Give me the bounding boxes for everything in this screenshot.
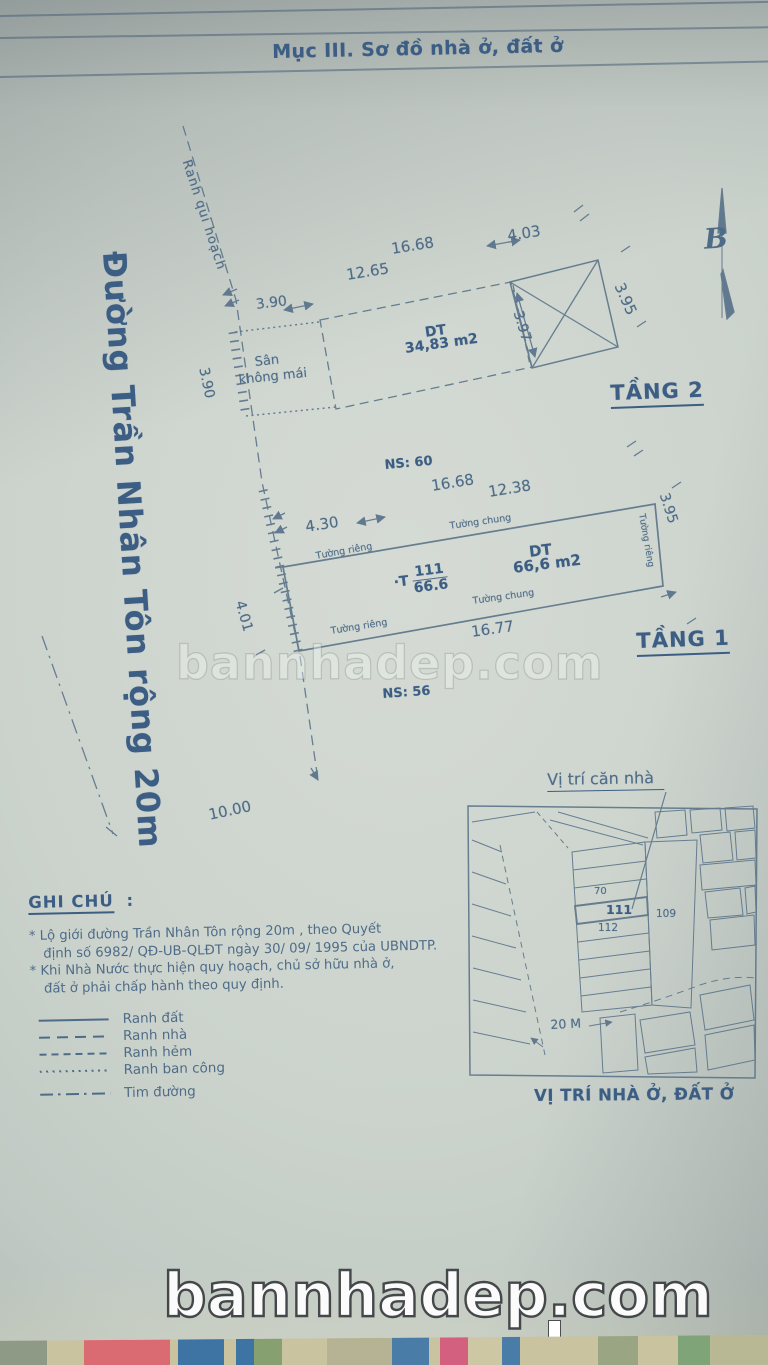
floor2-title: TẦNG 2 — [610, 378, 704, 409]
notes-title-text: GHI CHÚ — [28, 891, 114, 915]
legend-line-dash-short — [39, 1052, 109, 1056]
map-pointer-line — [632, 792, 666, 909]
location-map — [468, 792, 757, 1078]
line-legend: Ranh đất Ranh nhà Ranh hẻm Ranh ban công… — [31, 1004, 453, 1104]
watermark-bottom: bannhadep.com — [163, 1260, 713, 1331]
legend-line-solid — [39, 1018, 109, 1022]
legend-label: Ranh ban công — [124, 1060, 226, 1078]
map-pointer-title: Vị trí căn nhà — [547, 768, 664, 792]
legend-label: Ranh nhà — [123, 1027, 187, 1044]
map-caption: VỊ TRÍ NHÀ Ở, ĐẤT Ở — [534, 1084, 735, 1105]
map-lot-109-label: 109 — [656, 908, 676, 920]
legend-line-dash-long — [39, 1035, 109, 1039]
watermark-center: bannhadep.com — [176, 636, 604, 690]
legend-line-dashdot — [40, 1092, 110, 1096]
scanned-house-plan-page: Mục III. Sơ đồ nhà ở, đất ở — [0, 0, 768, 1365]
floor1-title: TẦNG 1 — [636, 626, 730, 657]
map-scale-label: 20 M — [550, 1015, 581, 1032]
map-lot-70-label: 70 — [594, 886, 607, 897]
north-letter: B — [703, 221, 729, 256]
legend-label: Ranh đất — [122, 1010, 183, 1027]
f2-yard-label-line1: Sân — [254, 352, 280, 369]
road-centerline — [42, 636, 117, 836]
map-lot-111-label: 111 — [606, 902, 632, 917]
map-lot-112-label: 112 — [598, 922, 618, 934]
f1-lot-fraction: ·T 111 66.6 — [392, 561, 449, 598]
notes-title-colon: : — [126, 891, 134, 910]
f1-lot-prefix: ·T — [393, 573, 410, 591]
photo-bottom-strip — [0, 1335, 768, 1365]
legend-label: Tim đường — [124, 1083, 196, 1100]
legend-label: Ranh hẻm — [123, 1043, 192, 1060]
legend-line-dotted — [40, 1069, 110, 1073]
notes-section: GHI CHÚ : * Lộ giới đường Trần Nhân Tôn … — [28, 884, 452, 1103]
